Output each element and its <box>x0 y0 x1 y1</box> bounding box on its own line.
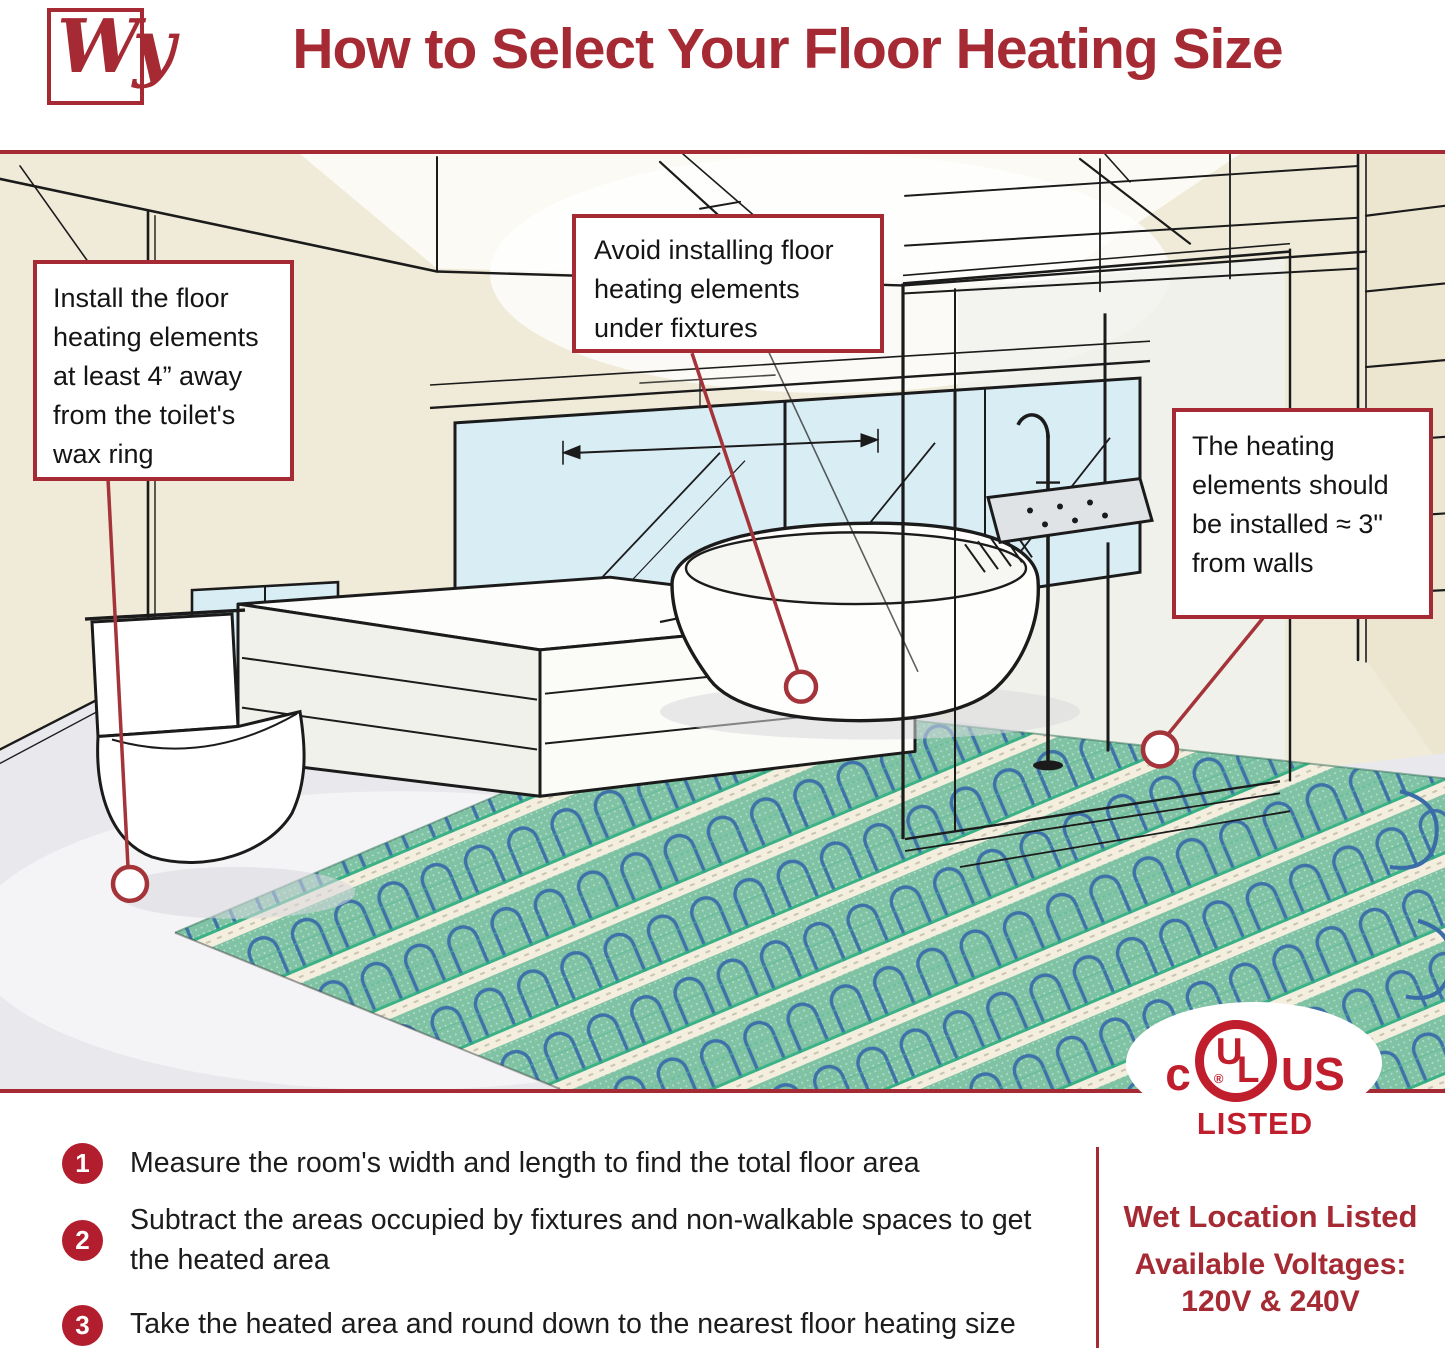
brand-logo: Wy <box>47 8 144 105</box>
callout-walls-text: The heating elements should be installed… <box>1192 431 1389 578</box>
steps-list: 1 Measure the room's width and length to… <box>62 1143 1062 1346</box>
registered-trademark-icon: ® <box>1214 1071 1224 1086</box>
step-1-badge: 1 <box>62 1143 103 1184</box>
step-item-1: 1 Measure the room's width and length to… <box>62 1143 1062 1184</box>
brand-logo-text: Wy <box>57 0 169 98</box>
callout-avoid-fixtures: Avoid installing floor heating elements … <box>572 214 884 353</box>
callout-fixtures-text: Avoid installing floor heating elements … <box>594 235 834 343</box>
wet-location-label: Wet Location Listed <box>1099 1199 1442 1235</box>
bathroom-illustration: Install the floor heating elements at le… <box>0 150 1445 1093</box>
callout-wall-clearance: The heating elements should be installed… <box>1172 408 1433 619</box>
step-item-3: 3 Take the heated area and round down to… <box>62 1305 1062 1346</box>
page-title: How to Select Your Floor Heating Size <box>170 16 1405 82</box>
step-3-text: Take the heated area and round down to t… <box>130 1305 1016 1345</box>
ul-certification-badge: c U L ® US LISTED <box>1120 1002 1390 1182</box>
callout-toilet-text: Install the floor heating elements at le… <box>53 283 259 469</box>
voltage-values: 120V & 240V <box>1099 1285 1442 1319</box>
callout-toilet-clearance: Install the floor heating elements at le… <box>33 260 294 481</box>
header: Wy How to Select Your Floor Heating Size <box>0 0 1445 150</box>
available-voltages-label: Available Voltages: <box>1099 1248 1442 1282</box>
step-2-text: Subtract the areas occupied by fixtures … <box>130 1201 1060 1281</box>
ul-us-mark: US <box>1281 1047 1345 1101</box>
toilet-marker <box>113 867 147 901</box>
bathtub-marker <box>786 672 816 702</box>
step-3-badge: 3 <box>62 1305 103 1346</box>
step-2-badge: 2 <box>62 1220 103 1261</box>
ul-canada-mark: c <box>1165 1047 1191 1101</box>
ul-letter-l: L <box>1237 1049 1260 1091</box>
infographic-page: Wy How to Select Your Floor Heating Size <box>0 0 1445 1348</box>
ul-listed-label: LISTED <box>1120 1106 1390 1142</box>
ul-logo-icon: U L ® <box>1195 1020 1277 1102</box>
shower-marker <box>1143 733 1177 767</box>
step-item-2: 2 Subtract the areas occupied by fixture… <box>62 1201 1062 1281</box>
step-1-text: Measure the room's width and length to f… <box>130 1144 920 1184</box>
